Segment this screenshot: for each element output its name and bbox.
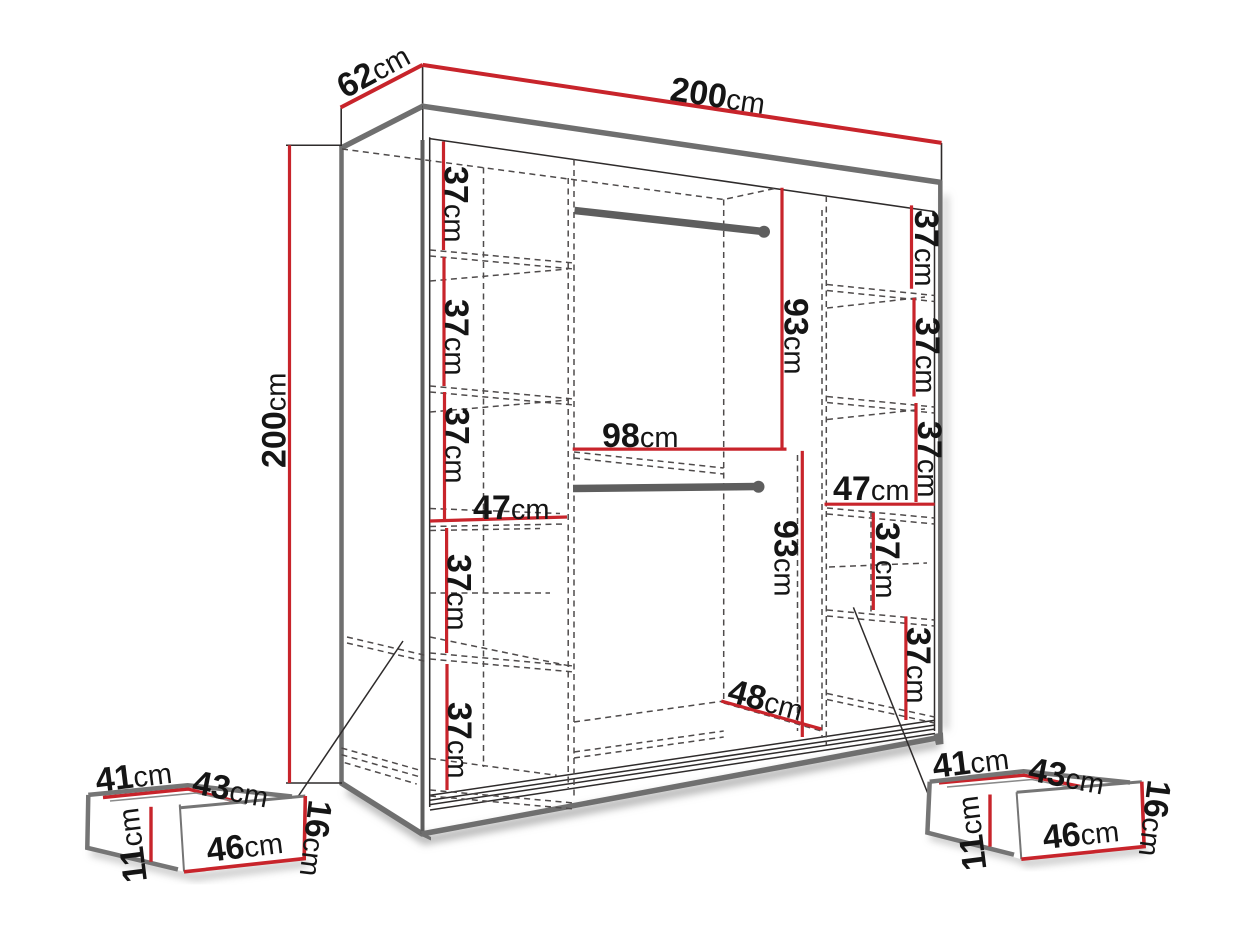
svg-text:93cm: 93cm [767, 520, 805, 597]
svg-text:47cm: 47cm [833, 470, 910, 508]
svg-text:98cm: 98cm [602, 417, 679, 455]
svg-text:37cm: 37cm [910, 421, 948, 498]
svg-text:37cm: 37cm [438, 407, 476, 484]
svg-text:37cm: 37cm [440, 702, 478, 779]
svg-text:37cm: 37cm [868, 522, 906, 599]
svg-text:37cm: 37cm [437, 299, 475, 376]
svg-text:37cm: 37cm [899, 627, 937, 704]
svg-text:200cm: 200cm [256, 373, 294, 468]
svg-text:37cm: 37cm [907, 210, 945, 287]
svg-text:47cm: 47cm [473, 489, 550, 527]
svg-text:37cm: 37cm [440, 554, 478, 631]
svg-text:37cm: 37cm [908, 317, 946, 394]
svg-text:93cm: 93cm [777, 298, 815, 375]
svg-text:37cm: 37cm [437, 166, 475, 243]
